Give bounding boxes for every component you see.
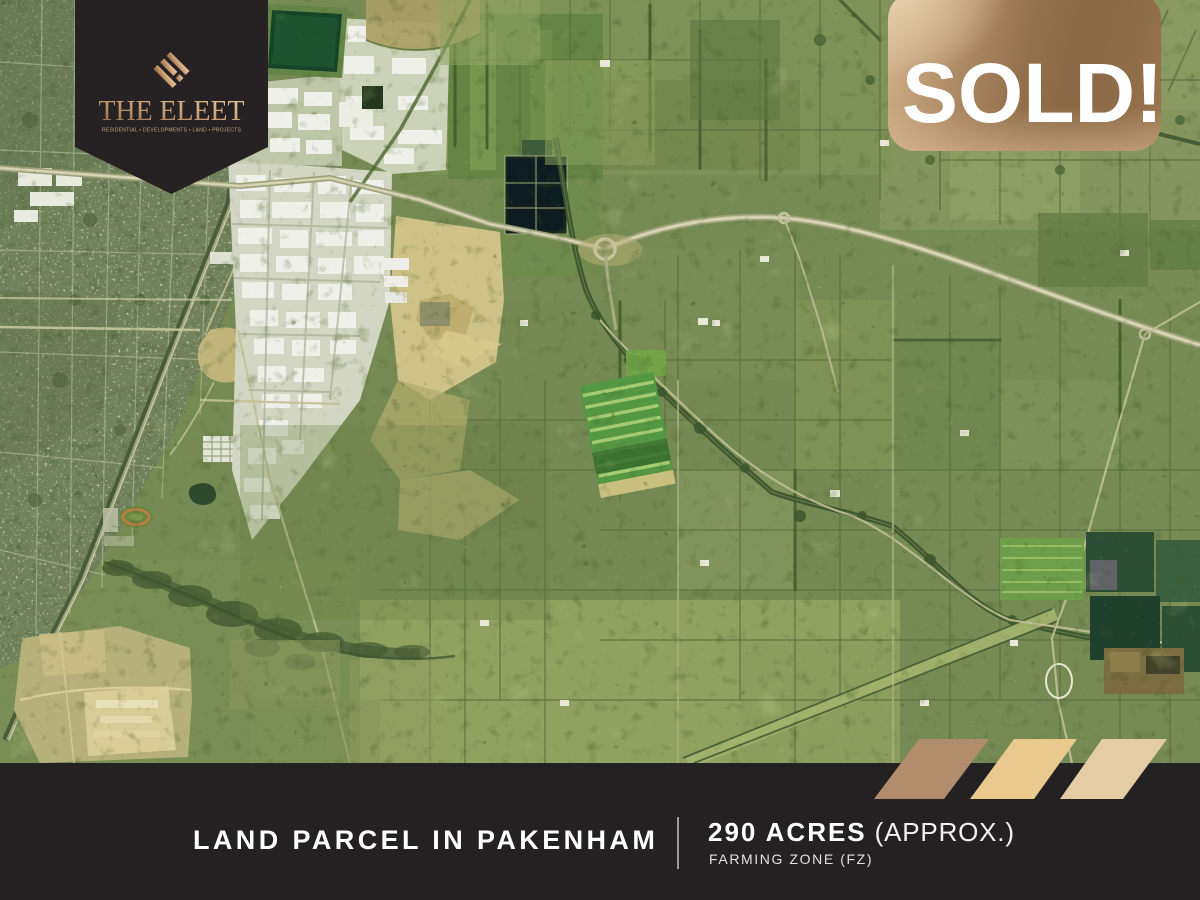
- svg-text:RESIDENTIAL • DEVELOPMENTS • L: RESIDENTIAL • DEVELOPMENTS • LAND • PROJ…: [102, 128, 242, 134]
- svg-text:THE ELEET: THE ELEET: [99, 96, 245, 127]
